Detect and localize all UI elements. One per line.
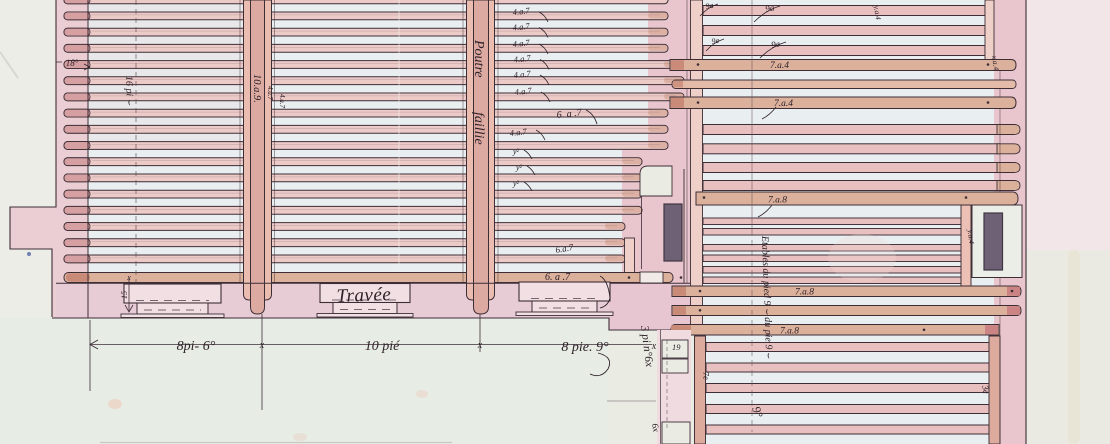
svg-text:4.a.7: 4.a.7 bbox=[512, 37, 531, 49]
svg-text:7.a.8: 7.a.8 bbox=[795, 288, 814, 298]
svg-text:Travée: Travée bbox=[336, 284, 391, 307]
svg-text:6. a .7: 6. a .7 bbox=[545, 272, 571, 283]
svg-text:7.a.4: 7.a.4 bbox=[770, 61, 789, 71]
svg-text:4.a.7: 4.a.7 bbox=[266, 86, 274, 101]
svg-text:4.a.7: 4.a.7 bbox=[513, 53, 532, 65]
svg-text:x: x bbox=[477, 340, 483, 351]
svg-text:y.a.4: y.a.4 bbox=[966, 228, 976, 244]
svg-text:Poutre: Poutre bbox=[471, 39, 486, 78]
svg-text:faillie: faillie bbox=[471, 112, 486, 145]
svg-text:4.a.7: 4.a.7 bbox=[512, 21, 531, 33]
svg-text:10 pié: 10 pié bbox=[365, 339, 400, 354]
svg-text:4.a.7: 4.a.7 bbox=[278, 94, 286, 109]
svg-text:y²: y² bbox=[512, 147, 520, 156]
svg-text:x: x bbox=[126, 273, 131, 282]
svg-text:4.a.7: 4.a.7 bbox=[512, 5, 531, 17]
svg-text:7.a.8: 7.a.8 bbox=[780, 327, 799, 337]
svg-text:18°: 18° bbox=[66, 58, 79, 68]
svg-text:7.a.8: 7.a.8 bbox=[768, 196, 787, 206]
svg-text:x: x bbox=[259, 340, 265, 351]
svg-text:8 pie. 9°: 8 pie. 9° bbox=[561, 340, 609, 355]
svg-text:7e: 7e bbox=[701, 371, 712, 380]
svg-text:4.a.7: 4.a.7 bbox=[513, 68, 532, 80]
svg-text:15: 15 bbox=[120, 291, 129, 299]
svg-text:10.a.9.: 10.a.9. bbox=[251, 74, 262, 103]
svg-text:8pi- 6°: 8pi- 6° bbox=[177, 339, 216, 354]
svg-text:19: 19 bbox=[672, 342, 681, 352]
svg-text:4.a.7: 4.a.7 bbox=[509, 126, 528, 138]
svg-text:y²: y² bbox=[515, 163, 523, 172]
svg-text:y²: y² bbox=[512, 179, 520, 188]
svg-text:7.a.4: 7.a.4 bbox=[774, 99, 793, 109]
svg-text:6x: 6x bbox=[650, 423, 661, 433]
svg-text:16 pi ⌣: 16 pi ⌣ bbox=[123, 76, 135, 106]
svg-text:4.a.7: 4.a.7 bbox=[514, 85, 533, 97]
